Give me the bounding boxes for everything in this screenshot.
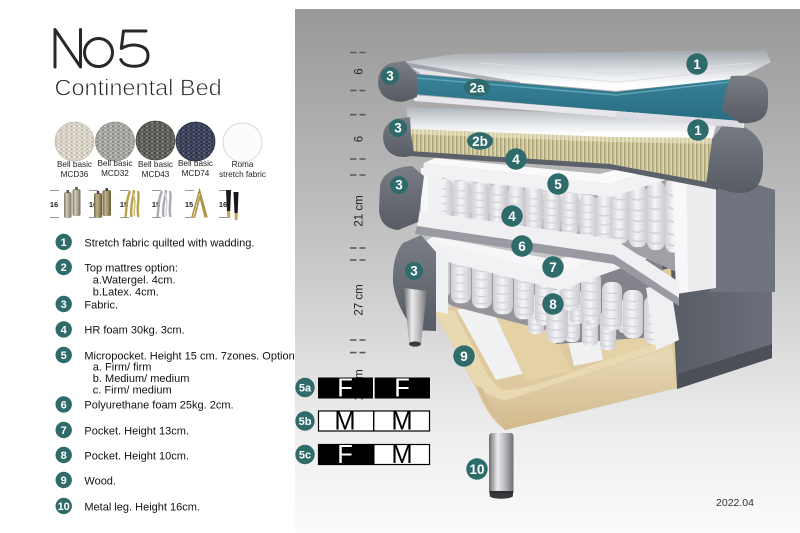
svg-text:M: M bbox=[391, 408, 412, 436]
svg-text:2022.04: 2022.04 bbox=[716, 497, 754, 509]
svg-text:27 cm: 27 cm bbox=[354, 284, 366, 315]
svg-text:3: 3 bbox=[394, 121, 402, 136]
svg-text:Stretch fabric quilted with wa: Stretch fabric quilted with wadding. bbox=[84, 237, 254, 249]
svg-text:5b: 5b bbox=[299, 416, 312, 428]
svg-text:5a: 5a bbox=[299, 383, 312, 395]
svg-text:7: 7 bbox=[61, 425, 67, 437]
svg-text:4: 4 bbox=[508, 209, 516, 224]
svg-text:Roma: Roma bbox=[232, 160, 254, 169]
svg-text:MCD36: MCD36 bbox=[61, 170, 89, 179]
svg-text:b. Medium/ medium: b. Medium/ medium bbox=[93, 373, 190, 385]
svg-text:8: 8 bbox=[549, 297, 557, 312]
svg-text:3: 3 bbox=[395, 178, 403, 193]
svg-text:9: 9 bbox=[61, 475, 67, 487]
svg-text:4: 4 bbox=[512, 152, 520, 167]
svg-text:4: 4 bbox=[61, 324, 68, 336]
svg-text:3: 3 bbox=[386, 69, 394, 84]
svg-text:3: 3 bbox=[410, 264, 418, 279]
svg-text:stretch fabric: stretch fabric bbox=[219, 170, 266, 179]
svg-text:Continental Bed: Continental Bed bbox=[55, 75, 222, 101]
svg-text:Bell basic: Bell basic bbox=[178, 159, 213, 168]
svg-text:5c: 5c bbox=[299, 450, 311, 462]
svg-text:F: F bbox=[337, 441, 353, 469]
svg-text:Fabric.: Fabric. bbox=[84, 299, 118, 311]
svg-text:F: F bbox=[337, 375, 353, 403]
svg-text:6: 6 bbox=[61, 399, 67, 411]
svg-text:6: 6 bbox=[354, 136, 366, 142]
svg-text:Bell basic: Bell basic bbox=[138, 160, 173, 169]
svg-text:a. Firm/ firm: a. Firm/ firm bbox=[93, 362, 152, 374]
svg-text:F: F bbox=[394, 375, 410, 403]
svg-text:Bell basic: Bell basic bbox=[57, 160, 92, 169]
svg-text:1: 1 bbox=[61, 237, 67, 249]
svg-text:MCD32: MCD32 bbox=[101, 169, 129, 178]
svg-text:21 cm: 21 cm bbox=[354, 195, 366, 226]
svg-text:a.Watergel. 4cm.: a.Watergel. 4cm. bbox=[93, 275, 176, 287]
svg-text:Top mattres option:: Top mattres option: bbox=[84, 262, 178, 274]
svg-text:c. Firm/ medium: c. Firm/ medium bbox=[93, 385, 172, 397]
svg-text:M: M bbox=[391, 441, 412, 469]
svg-text:Metal leg. Height 16cm.: Metal leg. Height 16cm. bbox=[84, 501, 200, 513]
svg-text:10: 10 bbox=[469, 462, 484, 477]
svg-text:3: 3 bbox=[61, 299, 67, 311]
svg-text:9: 9 bbox=[460, 349, 468, 364]
svg-text:10: 10 bbox=[58, 501, 70, 513]
svg-text:MCD74: MCD74 bbox=[182, 169, 210, 178]
svg-text:Polyurethane foam 25kg. 2cm.: Polyurethane foam 25kg. 2cm. bbox=[84, 400, 233, 412]
svg-text:15: 15 bbox=[185, 200, 193, 209]
svg-text:HR foam 30kg. 3cm.: HR foam 30kg. 3cm. bbox=[84, 325, 184, 337]
svg-text:Bell basic: Bell basic bbox=[97, 159, 132, 168]
svg-text:2b: 2b bbox=[472, 134, 488, 149]
svg-text:8: 8 bbox=[61, 450, 67, 462]
svg-text:1: 1 bbox=[693, 57, 701, 72]
svg-text:Wood.: Wood. bbox=[84, 475, 116, 487]
svg-text:2: 2 bbox=[61, 262, 67, 274]
svg-text:Micropocket. Height 15 cm. 7zo: Micropocket. Height 15 cm. 7zones. Optio… bbox=[84, 350, 297, 362]
svg-text:2a: 2a bbox=[469, 80, 485, 95]
svg-text:6: 6 bbox=[354, 68, 366, 74]
svg-text:5: 5 bbox=[61, 350, 67, 362]
svg-text:5: 5 bbox=[554, 177, 562, 192]
svg-text:M: M bbox=[334, 408, 355, 436]
svg-text:MCD43: MCD43 bbox=[142, 170, 170, 179]
svg-text:6: 6 bbox=[518, 239, 526, 254]
svg-text:1: 1 bbox=[694, 123, 702, 138]
svg-text:7: 7 bbox=[549, 260, 557, 275]
svg-text:16: 16 bbox=[50, 200, 58, 209]
svg-text:16: 16 bbox=[219, 200, 227, 209]
svg-text:Pocket. Height 10cm.: Pocket. Height 10cm. bbox=[84, 450, 189, 462]
svg-text:b.Latex. 4cm.: b.Latex. 4cm. bbox=[93, 287, 159, 299]
svg-text:Pocket. Height 13cm.: Pocket. Height 13cm. bbox=[84, 425, 189, 437]
